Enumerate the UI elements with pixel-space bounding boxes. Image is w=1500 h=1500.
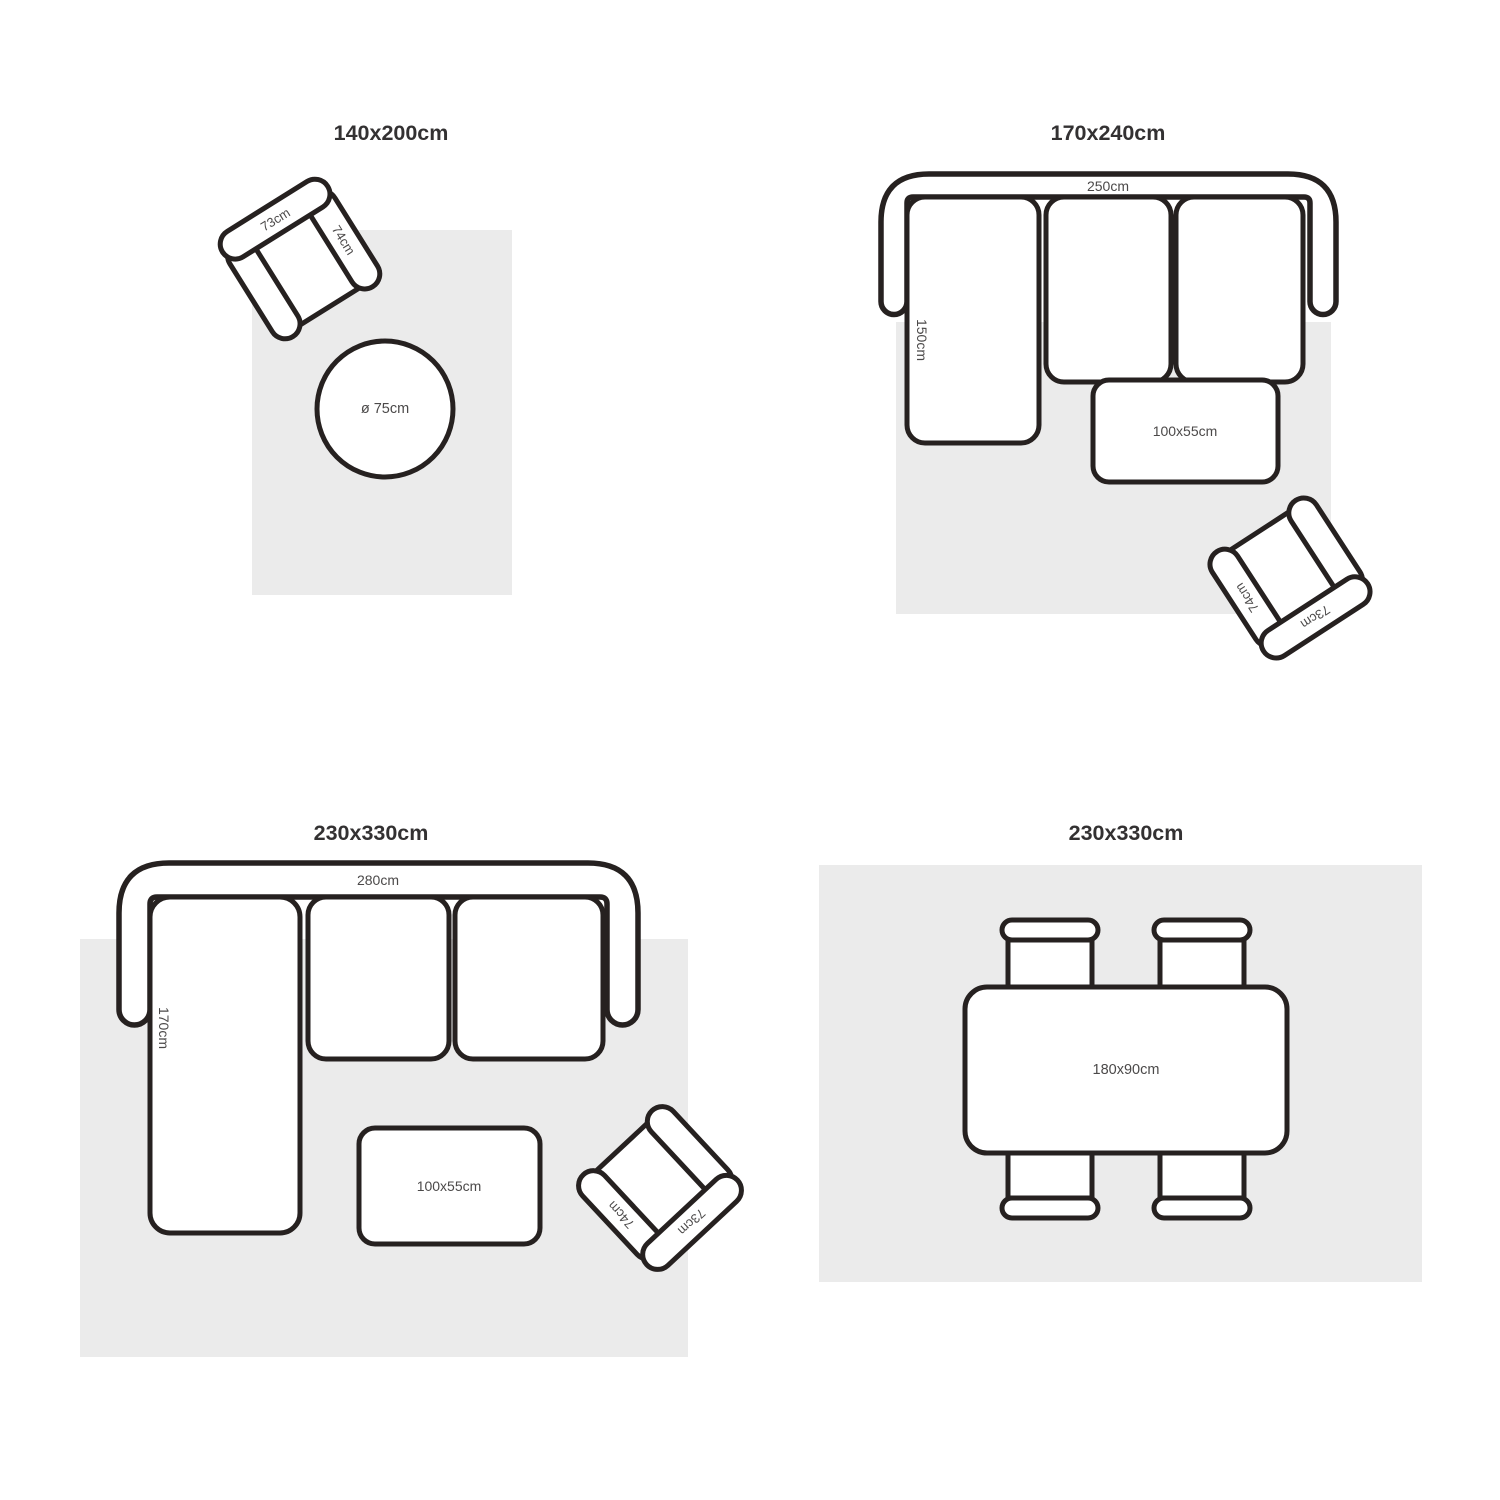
coffee-table-label: 100x55cm [1153,423,1218,439]
sofa-cushion [455,897,603,1059]
sofa-width-label: 280cm [357,872,399,888]
dining-chair [1154,1150,1250,1218]
dining-chair [1002,920,1098,988]
dining-chair [1002,1150,1098,1218]
sofa-depth-label: 170cm [156,1007,172,1049]
rug-size-guide: 73cm 74cm 140x200cm ø 75cm 170x240cm 250… [0,0,1500,1500]
sofa-width-label: 250cm [1087,178,1129,194]
quadrant-title: 140x200cm [334,121,449,145]
sofa-cushion [308,897,449,1059]
quadrant-top-right: 170x240cm 250cm 150cm 100x55cm [881,121,1376,664]
sofa-cushion [1176,197,1303,382]
sofa-chaise [150,897,300,1233]
quadrant-top-left: 140x200cm ø 75cm [215,121,512,595]
quadrant-title: 230x330cm [314,821,429,845]
quadrant-title: 170x240cm [1051,121,1166,145]
sofa-cushion [1046,197,1171,382]
quadrant-bottom-right: 230x330cm 180x90cm [819,821,1422,1282]
quadrant-title: 230x330cm [1069,821,1184,845]
sofa-depth-label: 150cm [914,319,930,361]
quadrant-bottom-left: 230x330cm 280cm 170cm 100x55cm [80,821,748,1357]
dining-table-label: 180x90cm [1093,1062,1160,1078]
round-table-label: ø 75cm [361,401,409,417]
dining-chair [1154,920,1250,988]
coffee-table-label: 100x55cm [417,1178,482,1194]
